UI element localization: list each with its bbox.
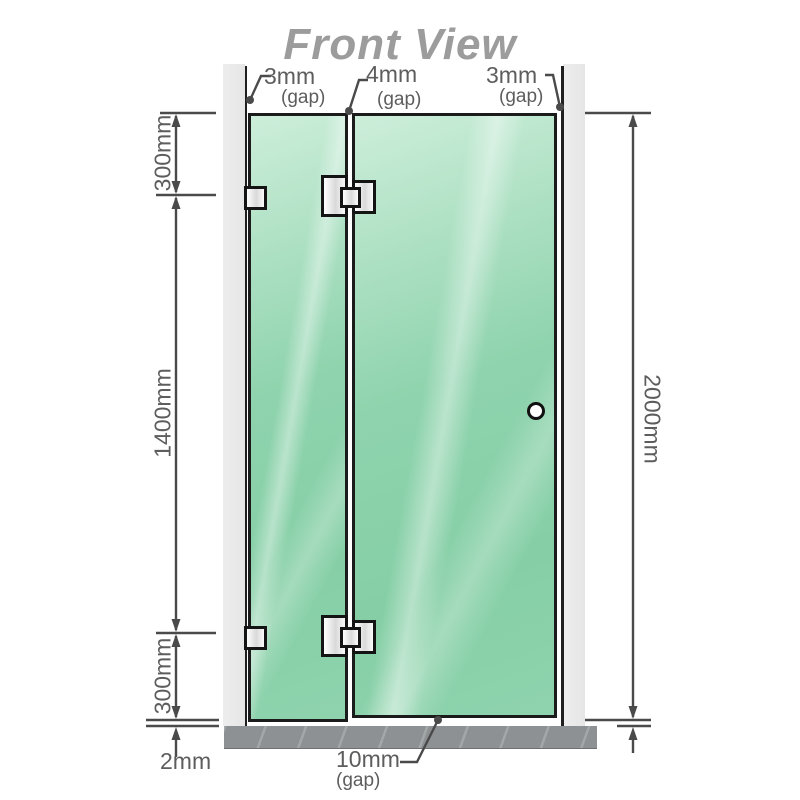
leader-lines [246,75,564,762]
front-view-diagram: Front View [0,0,800,800]
arrowhead [172,619,181,632]
label-dim-300-top: 300mm [152,115,175,192]
label-bottom-gap-unit: (gap) [336,771,380,790]
label-bottom-gap-value: 10mm [336,748,400,771]
label-gap-right-unit: (gap) [499,87,543,106]
arrowhead [629,706,638,719]
dimension-annotations [0,0,800,800]
brand-watermark [656,788,690,798]
label-dim-300-bottom: 300mm [152,638,175,715]
label-gap-middle-unit: (gap) [377,90,421,109]
label-gap-middle-value: 4mm [366,63,417,86]
arrowhead [629,727,638,740]
arrowhead [172,196,181,209]
label-gap-left-unit: (gap) [281,88,325,107]
label-dim-1400: 1400mm [152,368,175,457]
label-gap-right-value: 3mm [486,64,537,87]
leader-dot [556,103,564,111]
leader-dot [246,96,254,104]
leader-dot [345,107,353,115]
label-floor-gap-2mm: 2mm [160,750,211,773]
label-gap-left-value: 3mm [264,65,315,88]
arrowhead [629,114,638,127]
arrowhead [172,727,181,740]
label-dim-2000: 2000mm [641,374,664,463]
leader-dot [434,716,442,724]
